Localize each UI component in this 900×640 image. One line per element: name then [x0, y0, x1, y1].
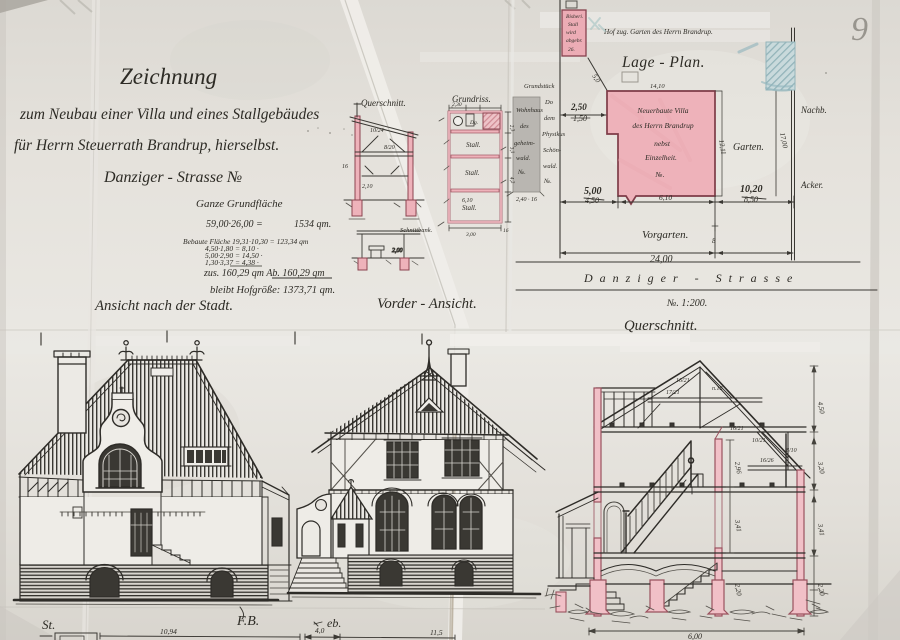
- svg-text:Physikus: Physikus: [541, 131, 566, 138]
- svg-text:8/20: 8/20: [384, 145, 395, 151]
- svg-text:16: 16: [503, 228, 509, 234]
- svg-text:№.: №.: [517, 169, 526, 176]
- svg-text:Hof zug. Garten des Herrn Bran: Hof zug. Garten des Herrn Brandrup.: [603, 28, 713, 36]
- svg-text:1,50: 1,50: [573, 114, 587, 123]
- svg-text:16: 16: [342, 164, 348, 170]
- svg-text:zum Neubau einer Villa und ein: zum Neubau einer Villa und eines Stallge…: [19, 106, 319, 123]
- svg-text:59,00·26,00 =: 59,00·26,00 =: [206, 219, 263, 230]
- svg-text:Querschnitt.: Querschnitt.: [361, 98, 406, 108]
- svg-text:4,50: 4,50: [585, 196, 599, 205]
- svg-text:Danziger - Strasse №: Danziger - Strasse №: [103, 169, 242, 186]
- svg-text:4,0: 4,0: [315, 626, 325, 635]
- svg-text:Dg.: Dg.: [469, 120, 478, 126]
- svg-text:Stall.: Stall.: [462, 204, 477, 212]
- svg-text:bleibt Hofgröße: 1373,71 qm.: bleibt Hofgröße: 1373,71 qm.: [210, 285, 335, 296]
- svg-text:№.: №.: [655, 170, 665, 179]
- svg-text:24,00: 24,00: [650, 254, 673, 265]
- svg-text:für Herrn Steuerrath Brandrup,: für Herrn Steuerrath Brandrup, hierselbs…: [14, 137, 279, 154]
- svg-text:17/21: 17/21: [666, 390, 680, 396]
- svg-text:nebst: nebst: [654, 139, 671, 148]
- svg-text:Neuerbaute Villa: Neuerbaute Villa: [637, 106, 689, 115]
- svg-text:wird: wird: [566, 30, 576, 36]
- svg-text:F.B.: F.B.: [236, 614, 259, 629]
- svg-text:eb.: eb.: [327, 616, 341, 630]
- svg-text:wald.: wald.: [543, 163, 558, 170]
- svg-text:Querschnitt.: Querschnitt.: [624, 318, 698, 334]
- svg-text:Ganze Grundfläche: Ganze Grundfläche: [196, 198, 283, 210]
- svg-text:Einzelheit.: Einzelheit.: [644, 153, 677, 162]
- svg-text:10,20: 10,20: [740, 184, 763, 195]
- svg-text:Lage - Plan.: Lage - Plan.: [621, 54, 705, 71]
- svg-text:№. 1:200.: №. 1:200.: [666, 298, 707, 309]
- svg-text:abgebr.: abgebr.: [566, 38, 582, 44]
- svg-text:des: des: [520, 123, 529, 130]
- svg-text:geheim-: geheim-: [514, 140, 535, 147]
- svg-text:Acker.: Acker.: [800, 180, 823, 190]
- svg-text:Stall.: Stall.: [465, 169, 480, 177]
- svg-text:6,00: 6,00: [688, 632, 702, 640]
- svg-text:10,94: 10,94: [160, 627, 177, 636]
- svg-text:1534 qm.: 1534 qm.: [294, 219, 331, 230]
- svg-text:Stall: Stall: [568, 22, 579, 28]
- svg-text:14,10: 14,10: [650, 83, 665, 90]
- svg-text:2,10: 2,10: [362, 184, 373, 190]
- svg-text:8: 8: [712, 237, 716, 245]
- svg-text:Nachb.: Nachb.: [800, 105, 827, 115]
- svg-text:16/26: 16/26: [760, 458, 774, 464]
- svg-text:6,10: 6,10: [659, 193, 672, 202]
- svg-text:Garten.: Garten.: [733, 142, 764, 153]
- svg-text:Vorgarten.: Vorgarten.: [642, 229, 688, 241]
- svg-text:10/24: 10/24: [370, 127, 384, 134]
- svg-text:9: 9: [851, 11, 868, 48]
- svg-text:Grundstück: Grundstück: [524, 83, 554, 90]
- svg-text:Danziger - Strasse: Danziger - Strasse: [583, 271, 799, 285]
- svg-text:Ansicht nach der Stadt.: Ansicht nach der Stadt.: [94, 298, 233, 314]
- svg-text:11,5: 11,5: [430, 628, 443, 637]
- svg-text:Do: Do: [544, 99, 554, 106]
- svg-text:Schön-: Schön-: [543, 147, 561, 154]
- svg-text:dem: dem: [544, 115, 555, 122]
- svg-text:zus. 160,29 qm Ab. 160,29 qm: zus. 160,29 qm Ab. 160,29 qm: [203, 268, 325, 279]
- svg-text:Zeichnung: Zeichnung: [120, 64, 217, 89]
- svg-text:2,50: 2,50: [570, 102, 587, 112]
- svg-text:2,3: 2,3: [508, 124, 515, 132]
- svg-text:Stall.: Stall.: [466, 141, 481, 149]
- svg-text:n.18: n.18: [712, 386, 723, 392]
- svg-text:№.: №.: [543, 178, 552, 185]
- svg-text:26.: 26.: [568, 47, 575, 53]
- svg-text:Wohnhaus: Wohnhaus: [516, 107, 543, 114]
- svg-text:2,40 · 16: 2,40 · 16: [516, 196, 537, 203]
- svg-text:3,00: 3,00: [465, 232, 476, 238]
- svg-text:Schnittbank.: Schnittbank.: [400, 227, 433, 234]
- svg-text:2,00: 2,00: [392, 248, 403, 254]
- svg-text:Vorder - Ansicht.: Vorder - Ansicht.: [377, 296, 477, 312]
- svg-text:wald.: wald.: [516, 155, 531, 162]
- svg-text:16/21: 16/21: [676, 378, 690, 384]
- svg-text:2,30: 2,30: [452, 102, 462, 108]
- svg-text:St.: St.: [42, 617, 55, 632]
- svg-text:8,50: 8,50: [744, 195, 758, 204]
- svg-text:des Herrn Brandrup: des Herrn Brandrup: [632, 121, 693, 130]
- svg-text:Bisheri.: Bisheri.: [566, 14, 583, 20]
